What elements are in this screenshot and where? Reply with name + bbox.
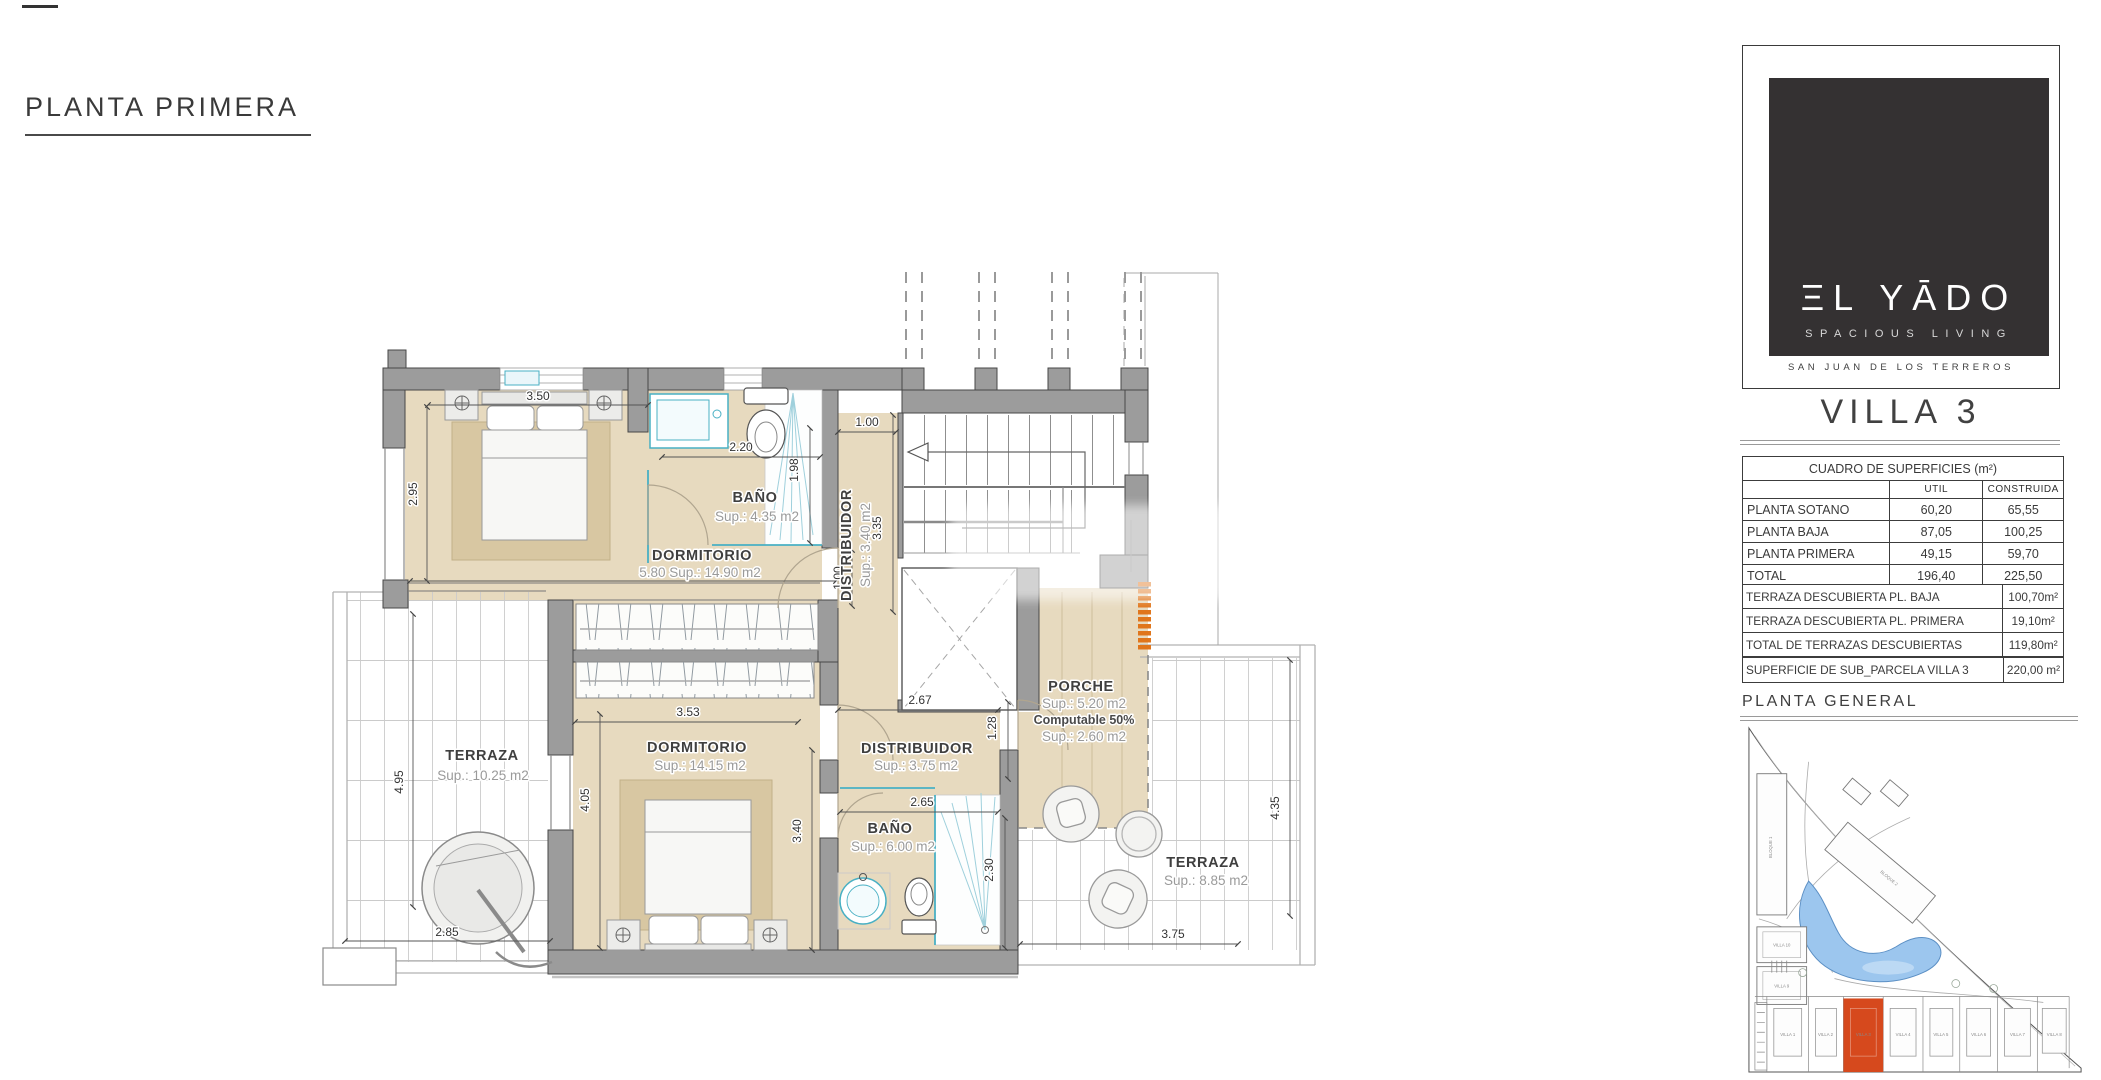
label-bano1: BAÑO [732,488,777,506]
table-row: PLANTA SOTANO 60,20 65,55 [1743,499,2064,521]
dim-1-98: 1.98 [787,458,801,482]
floor-plan-page: { "page": { "plan_title": "PLANTA PRIMER… [0,0,2101,1080]
dim-3-40: 3.40 [790,819,804,843]
surfaces-table: CUADRO DE SUPERFICIES (m²) UTIL CONSTRUI… [1742,456,2064,587]
svg-text:VILLA 4: VILLA 4 [1896,1032,1912,1037]
pillow [649,916,698,944]
dim-4-05: 4.05 [578,788,592,812]
floor-plan-drawing: 3.50 2.95 2.20 1.98 1.00 3.35 1.00 3.53 … [0,0,1460,1080]
pool-highlight [1862,961,1914,975]
bedroom2-furniture [607,780,787,950]
bloque1-label: BLOQUE 1 [1768,836,1773,858]
dim-2-30: 2.30 [982,858,996,882]
label-dorm1-sup: 5.80 Sup.: 14.90 m2 [639,565,761,580]
villa-title-rule [1740,440,2060,441]
pillow [701,916,748,944]
svg-text:VILLA 6: VILLA 6 [1971,1032,1987,1037]
dim-4-95: 4.95 [392,770,406,794]
dim-2-95: 2.95 [406,482,420,506]
pillow [537,406,583,430]
pillow [487,406,534,430]
brand-logo-box: ΞL YĀDO SPACIOUS LIVING SAN JUAN DE LOS … [1742,45,2060,389]
surfaces-col-empty [1743,481,1890,499]
label-bano2-sup: Sup.: 6.00 m2 [851,839,935,854]
terraces-table: TERRAZA DESCUBIERTA PL. BAJA 100,70m² TE… [1742,584,2064,657]
villa-title: VILLA 3 [1742,393,2060,432]
table-row: TOTAL DE TERRAZAS DESCUBIERTAS 119,80m² [1743,633,2064,657]
brand-logo-square: ΞL YĀDO SPACIOUS LIVING [1769,78,2049,356]
brand-location: SAN JUAN DE LOS TERREROS [1743,362,2059,373]
label-porche-sup2: Sup.: 2.60 m2 [1042,729,1126,744]
site-plan-drawing: BLOQUE 1 BLOQUE 2 VILLA 10 VILLA 9 VILLA… [1738,722,2098,1080]
villa-title-rule2 [1740,444,2060,445]
table-row: TERRAZA DESCUBIERTA PL. BAJA 100,70m² [1743,585,2064,609]
label-terraza2-sup: Sup.: 8.85 m2 [1164,873,1248,888]
label-porche-sup1: Sup.: 5.20 m2 [1042,696,1126,711]
villa9-label: VILLA 9 [1774,984,1790,989]
svg-text:VILLA 1: VILLA 1 [1780,1032,1796,1037]
label-dist1: DISTRIBUIDOR [839,489,855,601]
svg-text:VILLA 7: VILLA 7 [2010,1032,2026,1037]
svg-text:VILLA 5: VILLA 5 [1933,1032,1949,1037]
planta-general-rule2 [1740,720,2078,721]
label-bano2: BAÑO [867,819,912,837]
terrace-step [323,948,396,985]
dim-3-75: 3.75 [1161,927,1185,941]
toilet [902,878,936,934]
label-dorm1: DORMITORIO [652,548,752,564]
surfaces-col-util: UTIL [1890,481,1983,499]
table-row: PLANTA PRIMERA 49,15 59,70 [1743,543,2064,565]
brand-name: ΞL YĀDO [1801,277,2017,319]
dim-3-53: 3.53 [676,705,700,719]
bedroom1-furniture [445,390,622,560]
bed [482,430,587,540]
dim-2-65: 2.65 [910,795,934,809]
label-dist2-sup: Sup.: 3.75 m2 [874,758,958,773]
label-porche-note: Computable 50% [1034,713,1135,727]
parcel-table: SUPERFICIE DE SUB_PARCELA VILLA 3 220,00… [1742,657,2064,683]
label-terraza1-sup: Sup.: 10.25 m2 [437,768,529,783]
brand-tagline: SPACIOUS LIVING [1805,328,2013,340]
dim-3-50: 3.50 [526,389,550,403]
side-table [1116,811,1162,857]
planta-general-title: PLANTA GENERAL [1742,693,1918,711]
label-dist2: DISTRIBUIDOR [861,741,973,757]
surfaces-col-construida: CONSTRUIDA [1983,481,2064,499]
table-row: PLANTA BAJA 87,05 100,25 [1743,521,2064,543]
label-bano1-sup: Sup.: 4.35 m2 [715,509,799,524]
table-row: SUPERFICIE DE SUB_PARCELA VILLA 3 220,00… [1743,658,2064,683]
pergola-beams [906,272,1141,366]
label-dorm2: DORMITORIO [647,740,747,756]
label-terraza2: TERRAZA [1166,855,1239,871]
table-row: TERRAZA DESCUBIERTA PL. PRIMERA 19,10m² [1743,609,2064,633]
watermark [950,505,1420,600]
svg-text:VILLA 8: VILLA 8 [2047,1032,2063,1037]
bed [645,800,751,914]
villa10-label: VILLA 10 [1773,943,1791,948]
planta-general-rule [1740,716,2078,717]
dim-2-20: 2.20 [729,440,753,454]
label-porche: PORCHE [1048,679,1114,695]
dim-2-67: 2.67 [908,693,932,707]
svg-text:VILLA 2: VILLA 2 [1818,1032,1834,1037]
dim-4-35: 4.35 [1268,796,1282,820]
label-dorm2-sup: Sup.: 14.15 m2 [654,758,746,773]
svg-text:VILLA 3: VILLA 3 [1856,1032,1872,1037]
surfaces-table-title: CUADRO DE SUPERFICIES (m²) [1743,457,2064,481]
label-dist1-sup: Sup.: 3.40 m2 [858,503,873,587]
label-terraza1: TERRAZA [445,748,518,764]
dim-1-00a: 1.00 [855,415,879,429]
dim-2-85: 2.85 [435,925,459,939]
dim-1-28: 1.28 [985,716,999,740]
